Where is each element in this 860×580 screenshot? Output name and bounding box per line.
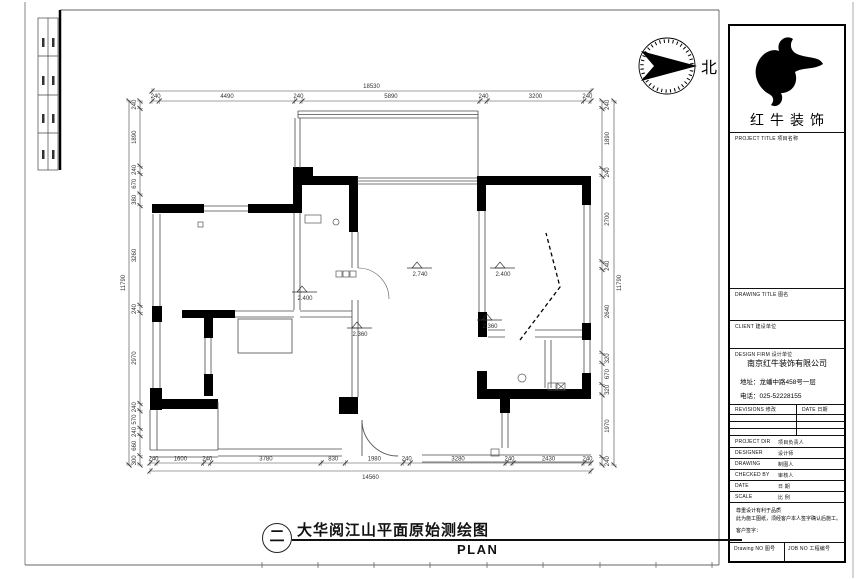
north-arrow: 北 [639, 38, 717, 94]
fixtures-part [518, 374, 526, 382]
drawing-index-symbol: 二 [262, 523, 292, 553]
dimension-layer: 2404490240589024032002401853024016002403… [121, 84, 623, 481]
dim-label: 240 [582, 94, 593, 100]
dim-label: 18530 [363, 84, 380, 90]
structural-walls-part [152, 204, 204, 213]
dim-label: 14560 [362, 475, 379, 481]
fixtures-part [305, 215, 321, 223]
dim-label: 11790 [121, 274, 127, 291]
structural-walls-part [582, 323, 591, 340]
structural-walls-part [150, 399, 218, 409]
note-line-2: 此为施工图纸，须经客户本人签字确认后施工。 [736, 515, 841, 522]
design-firm-label: DESIGN FIRM 设计单位 [735, 351, 792, 358]
dim-label: 300 [132, 455, 138, 466]
interior-walls-part [238, 319, 292, 353]
structural-walls-part [152, 306, 162, 322]
note-line-3: 客户签字： [736, 527, 761, 534]
project-title-label: PROJECT TITLE 项目名称 [735, 135, 798, 142]
field-checked-label: CHECKED BY [735, 472, 770, 478]
dim-label: 240 [605, 456, 611, 467]
drawing-no-label: Drawing NO 图号 [734, 545, 775, 552]
edge-strip-marks-part [42, 150, 45, 159]
dim-label: 3780 [259, 457, 273, 463]
dim-label: 2430 [542, 457, 556, 463]
dim-label: 3260 [132, 248, 138, 262]
dim-label: 1890 [605, 131, 611, 145]
structural-walls-part [339, 397, 358, 414]
dim-label: 1890 [132, 130, 138, 144]
fixtures-part [336, 271, 342, 277]
edge-strip-marks-part [42, 114, 45, 123]
divider [730, 132, 844, 133]
company-address: 地址：龙蟠中路458号一层 [740, 376, 816, 386]
field-scale-label: SCALE [735, 494, 752, 500]
elevation-label: 2.400 [297, 296, 313, 302]
client-label: CLIENT 建设单位 [735, 323, 776, 330]
divider [730, 542, 844, 543]
company-phone: 电话：025-52228155 [740, 390, 801, 400]
divider [730, 414, 844, 415]
dim-label: 660 [132, 440, 138, 451]
fixtures-part [350, 271, 356, 277]
dim-label: 240 [605, 167, 611, 178]
dim-label: 240 [293, 94, 304, 100]
field-date-label: DATE [735, 483, 749, 489]
elevation-marker-part [352, 322, 362, 328]
dim-label: 240 [605, 99, 611, 110]
sheet-edge-strip [38, 18, 58, 170]
structural-walls-part [477, 185, 486, 211]
structural-walls-part [477, 371, 487, 399]
elevation-marker-part [495, 262, 505, 268]
field-drawing-cn: 制图人 [778, 461, 794, 468]
dim-label: 2700 [605, 212, 611, 226]
edge-strip-marks-part [52, 76, 55, 85]
drawing-title-label: DRAWING TITLE 图名 [735, 291, 788, 298]
divider [784, 542, 785, 561]
divider [730, 491, 844, 492]
dim-label: 240 [148, 457, 159, 463]
revisions-header: REVISIONS 修改 [735, 406, 776, 413]
company-name: 南京红牛装饰有限公司 [730, 358, 844, 369]
edge-strip-marks-part [52, 114, 55, 123]
job-no-label: JOB NO 工程编号 [788, 545, 830, 552]
field-drawing-label: DRAWING [735, 461, 760, 467]
dim-label: 11790 [617, 274, 623, 291]
entry-door-arc [362, 420, 398, 456]
fixtures-part [333, 219, 339, 225]
field-project-dir-cn: 项目负责人 [778, 439, 804, 446]
divider [730, 435, 844, 436]
dim-label: 570 [132, 414, 138, 425]
dim-label: 240 [132, 99, 138, 110]
fixtures [198, 215, 565, 456]
divider [730, 320, 844, 321]
field-designer-cn: 设计师 [778, 450, 794, 457]
dim-label: 240 [151, 94, 162, 100]
elevation-marker: 2.360 [347, 322, 372, 338]
fixtures-part [198, 222, 203, 227]
north-label: 北 [701, 59, 717, 77]
structural-walls-part [477, 176, 591, 185]
structural-walls-part [293, 176, 357, 185]
dim-label: 240 [479, 94, 490, 100]
elevation-marker: 2.740 [407, 262, 432, 278]
field-checked-cn: 审核人 [778, 472, 794, 479]
elevation-label: 2.740 [412, 272, 428, 278]
company-logo [730, 30, 844, 110]
dim-label: 3200 [529, 94, 543, 100]
edge-strip-marks-part [42, 38, 45, 47]
structural-walls-part [582, 373, 591, 399]
divider [730, 458, 844, 459]
structural-walls-part [248, 204, 300, 213]
dim-label: 240 [505, 457, 516, 463]
dim-label: 5890 [384, 94, 398, 100]
structural-walls-part [477, 389, 591, 399]
title-underline [292, 539, 742, 541]
windows [150, 111, 591, 462]
note-line-1: 尊重设计有利于品质 [736, 507, 781, 514]
fixtures-part [548, 383, 556, 390]
drawing-sheet: 北 [0, 0, 860, 580]
dim-label: 320 [605, 384, 611, 395]
structural-walls [150, 167, 591, 414]
date-header: DATE 日期 [802, 406, 828, 413]
dim-label: 2970 [132, 351, 138, 365]
dim-label: 240 [605, 260, 611, 271]
elevation-marker-part [412, 262, 422, 268]
dim-label: 240 [582, 457, 593, 463]
elevation-marker: 2.400 [490, 262, 515, 278]
company-logo-text: 红牛装饰 [730, 110, 844, 130]
drawing-subtitle: PLAN [457, 542, 498, 557]
field-project-dir-label: PROJECT DIR [735, 439, 770, 445]
divider [730, 480, 844, 481]
interior-walls [205, 211, 582, 450]
edge-strip-marks-part [52, 38, 55, 47]
field-date-cn: 日 期 [778, 483, 790, 490]
structural-walls-part [349, 176, 358, 232]
divider [730, 404, 844, 405]
structural-walls-part [500, 399, 510, 413]
dim-label: 1600 [174, 457, 188, 463]
edge-strip-marks-part [42, 76, 45, 85]
elevation-markers-layer: 2.4002.7402.4002.3602.360 [292, 262, 515, 338]
dim-label: 2640 [605, 304, 611, 318]
dim-label: 1970 [605, 419, 611, 433]
title-block: 红牛装饰 PROJECT TITLE 项目名称 DRAWING TITLE 图名… [728, 24, 846, 563]
dim-label: 240 [132, 426, 138, 437]
divider [730, 288, 844, 289]
fixtures-part [343, 271, 349, 277]
structural-walls-part [204, 374, 213, 396]
doors [358, 268, 398, 456]
dim-label: 320 [605, 353, 611, 364]
elevation-label: 2.360 [352, 332, 368, 338]
edge-strip-marks-part [52, 150, 55, 159]
dim-label: 670 [605, 368, 611, 379]
dim-label: 240 [402, 457, 413, 463]
dim-label: 3280 [451, 457, 465, 463]
divider [796, 404, 797, 435]
north-arrow-pointer [641, 51, 697, 81]
dim-label: 240 [132, 303, 138, 314]
divider [730, 428, 844, 429]
dim-label: 240 [132, 164, 138, 175]
divider [730, 502, 844, 503]
dim-label: 670 [132, 178, 138, 189]
company-logo-part [756, 37, 823, 106]
structural-walls-part [582, 185, 591, 205]
dashed-line [520, 233, 560, 340]
dim-label: 240 [202, 457, 213, 463]
corridor-door-arc [358, 268, 389, 299]
dim-label: 380 [132, 194, 138, 205]
divider [730, 469, 844, 470]
elevation-label: 2.360 [482, 324, 498, 330]
field-scale-cn: 比 例 [778, 494, 790, 501]
dim-label: 1980 [368, 457, 382, 463]
drawing-title: 大华阅江山平面原始测绘图 [297, 519, 489, 540]
field-designer-label: DESIGNER [735, 450, 763, 456]
divider [730, 348, 844, 349]
dim-label: 830 [328, 457, 339, 463]
dim-label: 240 [132, 402, 138, 413]
dashed-line-part [520, 233, 560, 340]
divider [730, 421, 844, 422]
elevation-label: 2.400 [495, 272, 511, 278]
dim-label: 4490 [220, 94, 234, 100]
structural-walls-part [182, 310, 235, 318]
elevation-marker-part [297, 286, 307, 292]
elevation-marker: 2.400 [292, 286, 317, 302]
divider [730, 447, 844, 448]
